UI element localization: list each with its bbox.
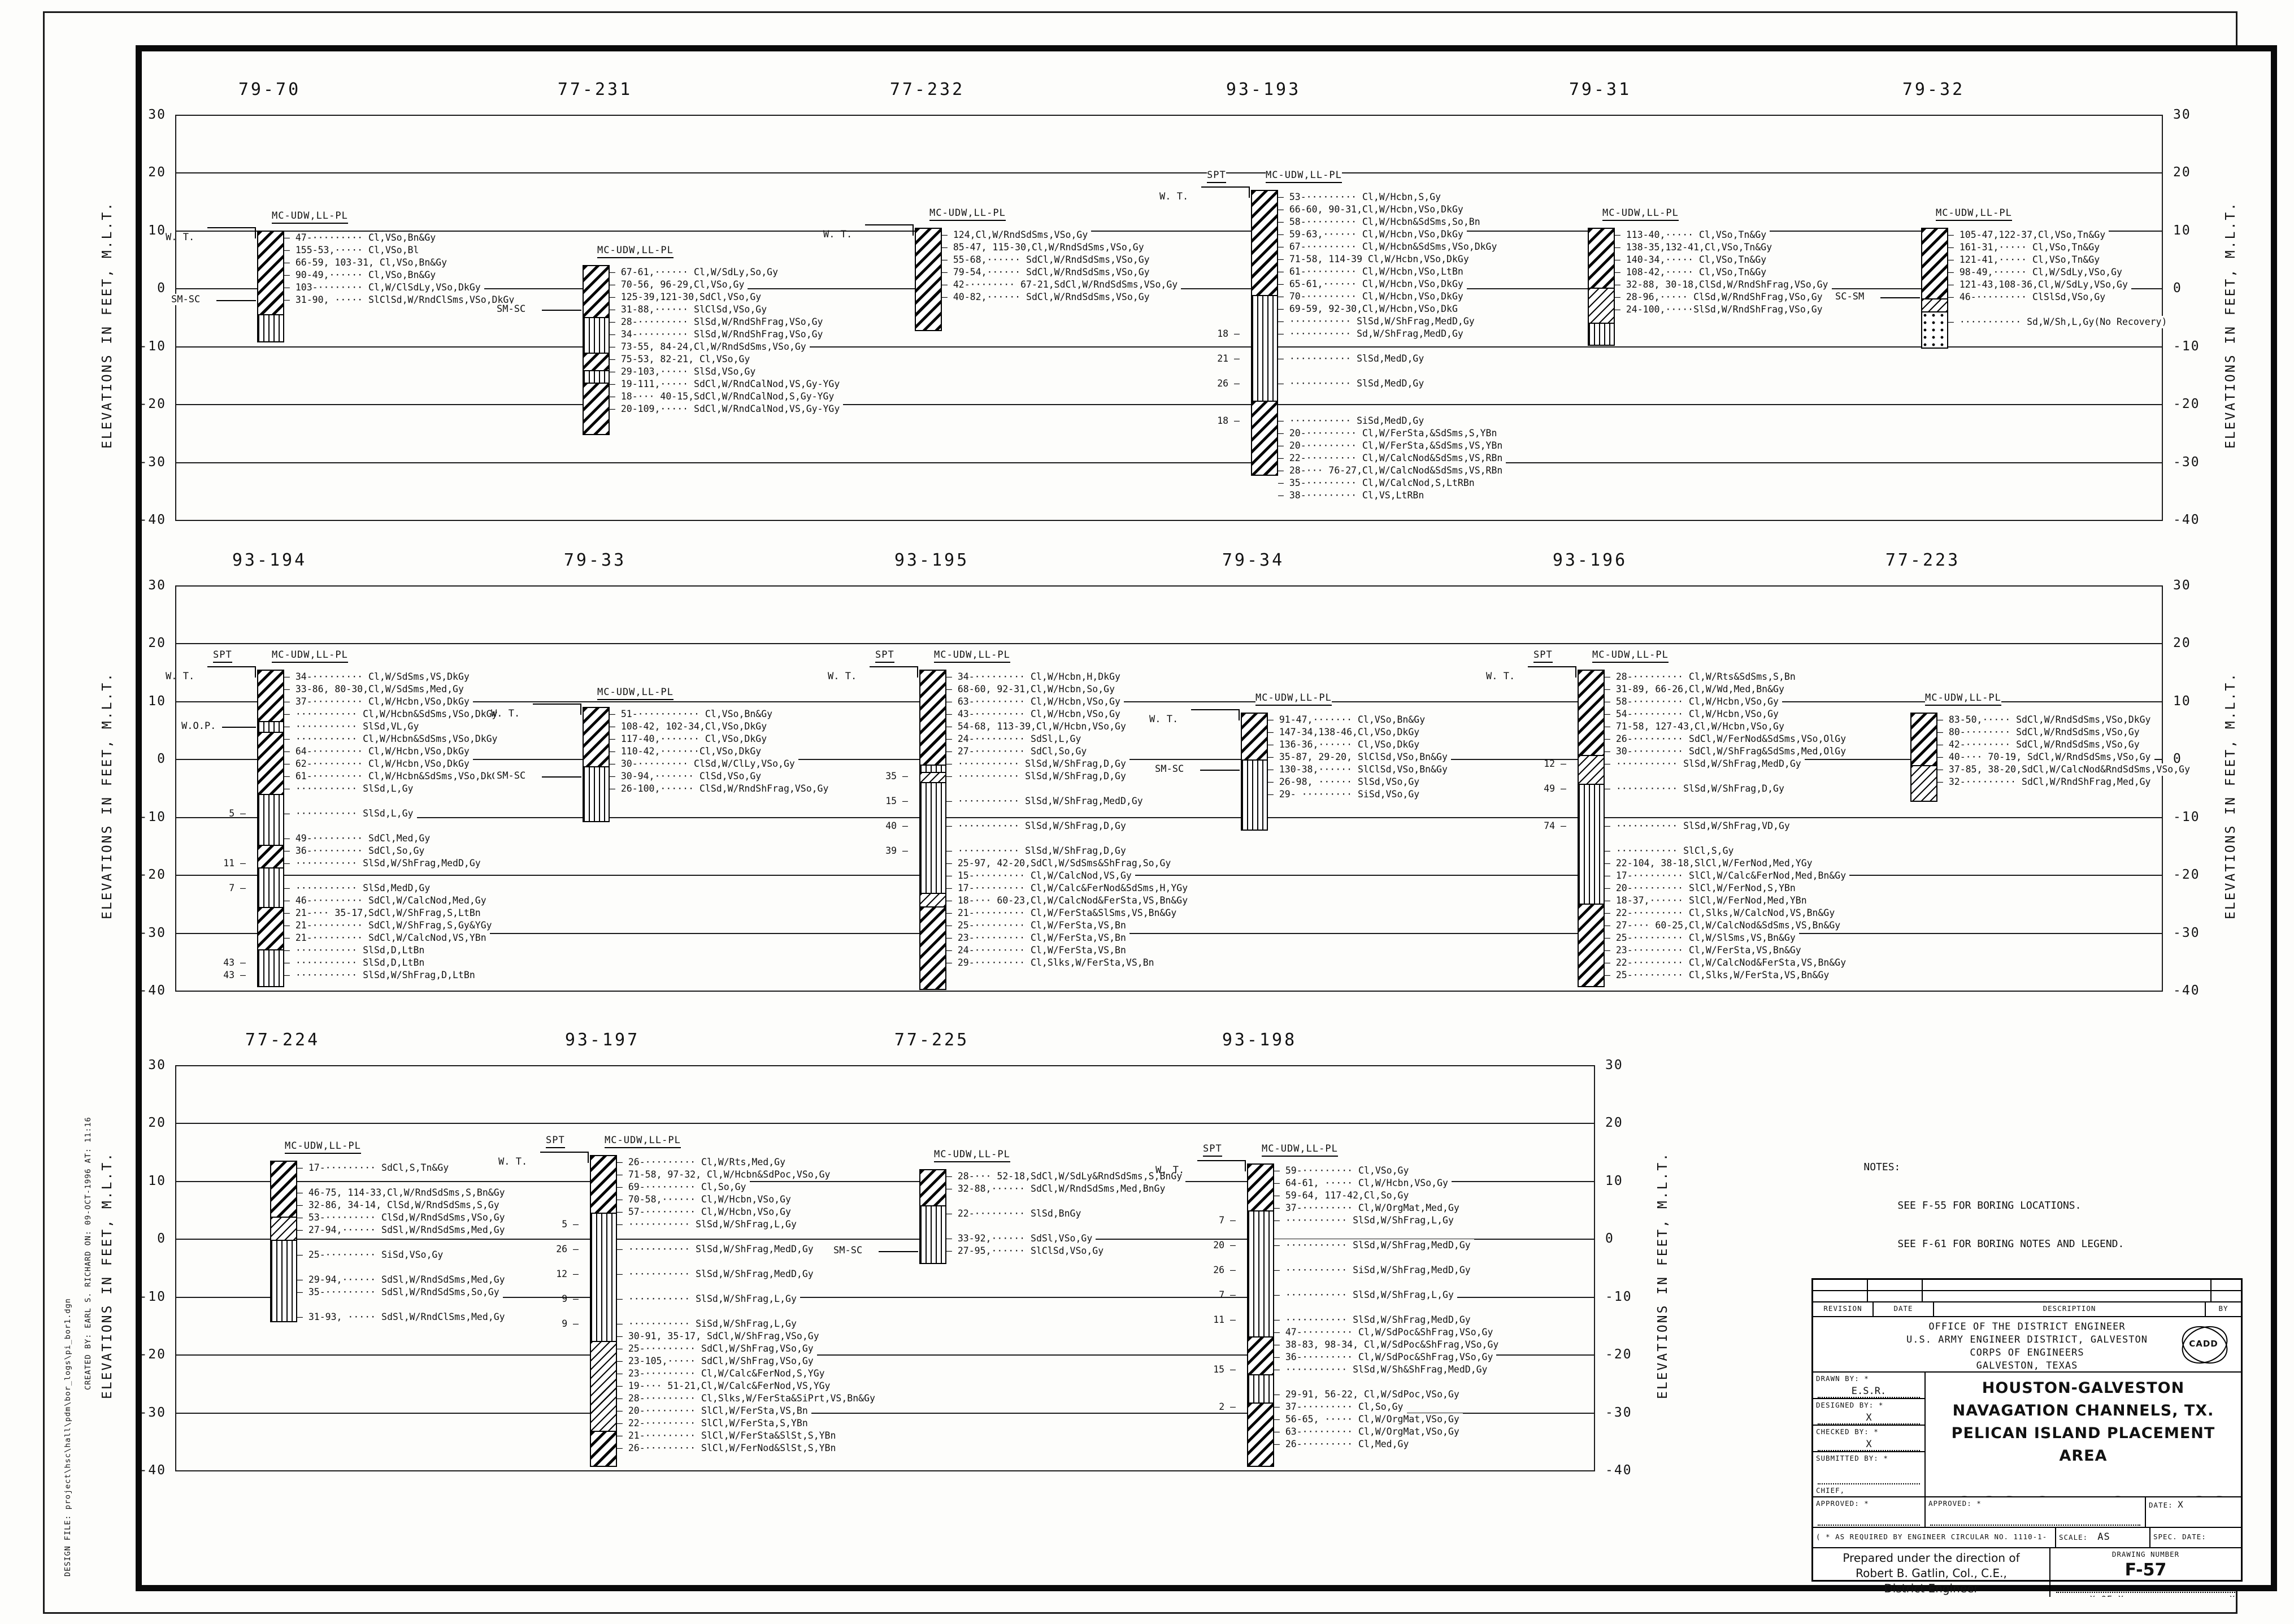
boring-column (583, 707, 610, 822)
spt-value: 20 – (1151, 1239, 1236, 1252)
stratum-segment-0 (258, 232, 283, 314)
panel-left-axis-line (175, 115, 176, 520)
right-tick--30: -30 (1605, 1405, 1632, 1420)
log-row: 138-35,132-41,Cl,VSo,Tn&Gy (1492, 241, 1865, 254)
log-row: 27-94,······ SdSl,W/RndSdSms,Med,Gy (174, 1224, 547, 1236)
spt-value: 7 – (1151, 1214, 1236, 1227)
log-row: 54-········· Cl,W/Hcbn,VSo,Gy (1481, 708, 1854, 720)
tb-date-label: DATE: X (2146, 1497, 2241, 1512)
layer-description: 136-36,······ Cl,VSo,DkGy (1268, 739, 1423, 751)
left-tick-20: 20 (127, 636, 166, 650)
log-row: 35-87, 29-20, SlClSd,VSo,Bn&Gy (1145, 751, 1518, 763)
spt-value: 12 – (494, 1268, 579, 1280)
boring-93-196: 93-196SPTMC-UDW,LL-PLW. T.28-········· C… (1481, 585, 1854, 991)
stratum-segment-4 (920, 893, 945, 906)
elevation-gridline-0 (175, 759, 2163, 760)
log-row: 25-········· Cl,W/FerSta,VS,Bn (823, 919, 1196, 932)
elevation-gridline-20 (175, 643, 2163, 644)
water-table-bracket (865, 224, 914, 236)
description-header: DESCRIPTION (1933, 1302, 2205, 1316)
notes-heading: NOTES: (1863, 1161, 1900, 1173)
log-row: 136-36,······ Cl,VSo,DkGy (1145, 739, 1518, 751)
right-tick-10: 10 (2173, 223, 2191, 238)
log-row: 110-42,·······Cl,VSo,DkGy (486, 745, 859, 758)
layer-description: 19-··· 51-21,Cl,W/Calc&FerNod,VS,YGy (617, 1380, 834, 1392)
layer-description: 17-········· SdCl,S,Tn&Gy (297, 1162, 452, 1174)
layer-description: 36-········· Cl,W/SdPoc&ShFrag,VSo,Gy (1274, 1351, 1496, 1364)
log-row: 11 –··········· SlSd,W/ShFrag,MedD,Gy (161, 857, 534, 870)
soil-class-label-SM-SC: SM-SC (831, 1245, 864, 1256)
elevation-gridline-0 (175, 288, 2163, 289)
layer-description: 32-86, 34-14, ClSd,W/RndSdSms,S,Gy (297, 1199, 503, 1212)
stratum-segment-1 (584, 766, 609, 821)
layer-description: ··········· SlSd,W/ShFrag,D,Gy (946, 845, 1129, 857)
soil-class-line (1200, 770, 1240, 771)
layer-description: ··········· SlSd,W/ShFrag,MedD,Gy (1274, 1239, 1474, 1252)
layer-description: 66-60, 90-31,Cl,W/Hcbn,VSo,DkGy (1278, 203, 1467, 216)
prepared-line2: Robert B. Gatlin, Col., C.E., (1856, 1566, 2007, 1580)
by-header: BY (2205, 1302, 2241, 1316)
stratum-segment-3 (1579, 904, 1604, 986)
stratum-segment-0 (920, 1170, 945, 1205)
right-tick--20: -20 (2173, 397, 2200, 411)
left-tick-0: 0 (127, 752, 166, 766)
layer-description: 91-47,······· Cl,VSo,Bn&Gy (1268, 714, 1428, 726)
layer-description: ··········· SlSd,VL,Gy (284, 720, 422, 733)
layer-description: ··········· SlSd,W/ShFrag,MedD,Gy (946, 795, 1146, 807)
boring-79-70: 79-70MC-UDW,LL-PLW. T.SM-SC47-········· … (161, 115, 534, 520)
right-tick-20: 20 (1605, 1115, 1623, 1130)
left-tick--20: -20 (127, 867, 166, 882)
mc-udw-header: MC-UDW,LL-PL (1255, 692, 1332, 706)
spt-value: 21 – (1155, 353, 1240, 365)
stratum-segment-2 (584, 353, 609, 370)
left-tick-10: 10 (127, 694, 166, 709)
log-row: 9 –··········· SlSd,W/ShFrag,L,Gy (494, 1293, 867, 1305)
layer-description: 31-90, ····· SlClSd,W/RndClSms,VSo,DkGy (284, 294, 518, 306)
soil-class-line (542, 310, 581, 311)
log-row: 34-········· SlSd,W/RndShFrag,VSo,Gy (486, 328, 859, 341)
stratum-segment-2 (1252, 401, 1277, 475)
layer-description: 56-65, ····· Cl,W/OrgMat,VSo,Gy (1274, 1413, 1463, 1426)
log-row: 23-105,····· SdCl,W/ShFrag,VSo,Gy (494, 1355, 867, 1367)
log-row: 46-········· ClSlSd,VSo,Gy (1825, 291, 2198, 303)
approved-chief: CHIEF. (1813, 1526, 1924, 1527)
spt-value: 18 – (1155, 415, 1240, 427)
log-row: 57-········· Cl,W/Hcbn,VSo,Gy (494, 1206, 867, 1218)
layer-description: 54-68, 113-39,Cl,W/Hcbn,VSo,Gy (946, 720, 1129, 733)
layer-description: 31-93, ····· SdSl,W/RndClSms,Med,Gy (297, 1311, 509, 1323)
layer-description: ··········· SlSd,W/ShFrag,L,Gy (1274, 1214, 1457, 1227)
log-row: 66-60, 90-31,Cl,W/Hcbn,VSo,DkGy (1155, 203, 1528, 216)
log-row: 56-65, ····· Cl,W/OrgMat,VSo,Gy (1151, 1413, 1524, 1426)
drawn-by-value: E.S.R. (1818, 1386, 1920, 1398)
layer-description: ··········· SlSd,W/ShFrag,L,Gy (617, 1293, 800, 1305)
log-row: 36-········· SdCl,So,Gy (161, 845, 534, 857)
log-row: 28-96,····· ClSd,W/RndShFrag,VSo,Gy (1492, 291, 1865, 303)
designed-by-value: X (1818, 1412, 1920, 1425)
log-row: 23-········· Cl,W/FerSta,VS,Bn&Gy (1481, 944, 1854, 957)
log-row: 31-90, ····· SlClSd,W/RndClSms,VSo,DkGy (161, 294, 534, 306)
log-row: ··········· Sd,W/Sh,L,Gy(No Recovery) (1825, 316, 2198, 328)
prepared-under: Prepared under the direction of Robert B… (1813, 1548, 2049, 1597)
right-tick-20: 20 (2173, 636, 2191, 650)
left-tick-30: 30 (127, 107, 166, 122)
log-row: 43 –··········· SlSd,W/ShFrag,D,LtBn (161, 969, 534, 982)
right-tick--10: -10 (1605, 1289, 1632, 1304)
boring-column (915, 228, 942, 331)
log-row: 15 –··········· SlSd,W/Sh&ShFrag,MedD,Gy (1151, 1364, 1524, 1376)
layer-description: ··········· Cl,W/Hcbn&SdSms,VSo,DkGy (284, 708, 501, 720)
log-row: 31-89, 66-26,Cl,W/Wd,Med,Bn&Gy (1481, 683, 1854, 696)
log-row: 22-········· SlCl,W/FerSta,S,YBn (494, 1417, 867, 1430)
stratum-segment-2 (258, 732, 283, 794)
log-row: 66-59, 103-31, Cl,VSo,Bn&Gy (161, 257, 534, 269)
stratum-segment-0 (584, 266, 609, 317)
right-tick-30: 30 (1605, 1058, 1623, 1072)
panel-right-axis-line (2162, 585, 2163, 991)
elevation-gridline-30 (175, 1065, 1595, 1066)
project-title-line1: HOUSTON-GALVESTON NAVAGATION CHANNELS, T… (1953, 1379, 2214, 1419)
layer-description: 90-49,······ Cl,VSo,Bn&Gy (284, 269, 439, 281)
stratum-segment-1 (258, 314, 283, 341)
layer-description: 28-··· 76-27,Cl,W/CalcNod&SdSms,VS,RBn (1278, 464, 1506, 477)
log-row: 7 –··········· SlSd,W/ShFrag,L,Gy (1151, 1289, 1524, 1301)
stratum-segment-0 (258, 671, 283, 722)
water-table-bracket (1201, 186, 1250, 198)
elevation-gridline-0 (175, 1239, 1595, 1240)
stratum-segment-0 (584, 708, 609, 766)
log-row: 30-91, 35-17, SdCl,W/ShFrag,VSo,Gy (494, 1330, 867, 1343)
right-tick--40: -40 (2173, 513, 2200, 527)
log-row: 37-········· Cl,W/OrgMat,Med,Gy (1151, 1202, 1524, 1214)
right-tick--20: -20 (2173, 867, 2200, 882)
right-axis-title: ELEVATIONS IN FEET, M.L.T. (1656, 1078, 1670, 1473)
stratum-segment-0 (1579, 671, 1604, 755)
log-row: 47-········· Cl,VSo,Bn&Gy (161, 232, 534, 244)
layer-description: ··········· SlSd,W/ShFrag,L,Gy (1274, 1289, 1457, 1301)
layer-description: 63-········· Cl,W/OrgMat,VSo,Gy (1274, 1426, 1463, 1438)
soil-class-label-SM-SC: SM-SC (494, 303, 528, 315)
log-row: ··········· SlSd,D,LtBn (161, 944, 534, 957)
stratum-segment-0 (271, 1162, 296, 1217)
spt-value: 11 – (1151, 1314, 1236, 1326)
layer-description: ··········· SlSd,L,Gy (284, 783, 417, 795)
spt-value: 5 – (494, 1218, 579, 1231)
log-row: 49 –··········· SlSd,W/ShFrag,D,Gy (1481, 783, 1854, 795)
title-block: REVISION DATE DESCRIPTION BY OFFICE OF T… (1811, 1278, 2243, 1582)
boring-column (1251, 190, 1278, 476)
boring-column (1247, 1163, 1274, 1467)
layer-description: 20-········· Cl,W/FerSta,&SdSms,S,YBn (1278, 427, 1500, 440)
layer-description: 37-85, 38-20,SdCl,W/CalcNod&RndSdSms,VSo… (1937, 763, 2193, 776)
mc-udw-header: MC-UDW,LL-PL (272, 649, 348, 663)
layer-description: 79-54,······ SdCl,W/RndSdSms,VSo,Gy (942, 266, 1153, 279)
left-tick-30: 30 (127, 1058, 166, 1072)
spt-value: 9 – (494, 1318, 579, 1330)
right-tick-0: 0 (2173, 752, 2182, 766)
log-row: 40 –··········· SlSd,W/ShFrag,D,Gy (823, 820, 1196, 832)
right-tick--20: -20 (1605, 1347, 1632, 1362)
elevation-gridline--10 (175, 1297, 1595, 1298)
layer-description: 25-97, 42-20,SdCl,W/SdSms&ShFrag,So,Gy (946, 857, 1174, 870)
stratum-segment-1 (1589, 288, 1614, 323)
log-row: 21-········· Cl,W/FerSta&SlSms,VS,Bn&Gy (823, 907, 1196, 919)
log-row: 61-········· Cl,W/Hcbn&SdSms,VSo,DkGy (161, 770, 534, 783)
log-row: 20 –··········· SlSd,W/ShFrag,MedD,Gy (1151, 1239, 1524, 1252)
water-table-bracket (207, 227, 256, 238)
revision-header: REVISION (1813, 1302, 1872, 1316)
layer-description: 21-··· 35-17,SdCl,W/ShFrag,S,LtBn (284, 907, 484, 919)
log-row: 25-········· SdCl,W/ShFrag,VSo,Gy (494, 1343, 867, 1355)
layer-description: 25-········· Cl,Slks,W/FerSta,VS,Bn&Gy (1605, 969, 1832, 982)
log-row: 117-40,······· Cl,VSo,DkGy (486, 733, 859, 745)
layer-description: 20-········· SlCl,W/FerSta,VS,Bn (617, 1405, 811, 1417)
log-row: ··········· SlSd,L,Gy (161, 783, 534, 795)
stratum-segment-0 (1248, 1165, 1273, 1210)
water-table-bracket (870, 666, 918, 678)
boring-column (583, 265, 610, 435)
log-row: 28-··· 76-27,Cl,W/CalcNod&SdSms,VS,RBn (1155, 464, 1528, 477)
log-row: 35-········· Cl,W/CalcNod,S,LtRBn (1155, 477, 1528, 489)
stratum-segment-0 (1589, 229, 1614, 288)
mc-udw-header: MC-UDW,LL-PL (597, 687, 674, 700)
layer-description: 18-··· 40-15,SdCl,W/RndCalNod,S,Gy-YGy (610, 390, 837, 403)
layer-description: 83-50,····· SdCl,W/RndSdSms,VSo,DkGy (1937, 714, 2154, 726)
log-row: 21-········· SdCl,W/ShFrag,S,Gy&YGy (161, 919, 534, 932)
stratum-segment-6 (258, 907, 283, 949)
drawing-number-value: F-57 (2050, 1560, 2241, 1580)
layer-description: 70-········· Cl,W/Hcbn,VSo,DkGy (1278, 290, 1467, 303)
layer-description: 75-53, 82-21, Cl,VSo,Gy (610, 353, 753, 366)
layer-description: 26-········· Cl,W/Rts,Med,Gy (617, 1156, 789, 1169)
log-row: 85-47, 115-30,Cl,W/RndSdSms,VSo,Gy (819, 241, 1192, 254)
elevation-gridline--10 (175, 346, 2163, 348)
log-row: ··········· SlCl,S,Gy (1481, 845, 1854, 857)
left-axis-title: ELEVATIONS IN FEET, M.L.T. (100, 598, 115, 993)
layer-description: 22-········· Cl,Slks,W/CalcNod,VS,Bn&Gy (1605, 907, 1838, 919)
elevation-gridline--20 (175, 875, 2163, 876)
right-tick-0: 0 (1605, 1231, 1614, 1246)
margin-created-by: CREATED BY: EARL S. RICHARD ON: 09-OCT-1… (84, 1117, 93, 1390)
approved2-label: APPROVED: * (1926, 1497, 2145, 1509)
layer-description: 21-········· SlCl,W/FerSta&SlSt,S,YBn (617, 1430, 839, 1442)
sheet-title: LOGS OF BORINGS (1926, 1491, 2241, 1496)
mc-udw-header: MC-UDW,LL-PL (1592, 649, 1669, 663)
panel-left-axis-line (175, 1065, 176, 1470)
log-row: 37-85, 38-20,SdCl,W/CalcNod&RndSdSms,VSo… (1814, 763, 2187, 776)
elevation-gridline--40 (175, 520, 2163, 521)
layer-description: ··········· SiSd,W/ShFrag,L,Gy (617, 1318, 800, 1330)
boring-79-33: 79-33MC-UDW,LL-PLW. T.SM-SC51-··········… (486, 585, 859, 991)
layer-description: 66-59, 103-31, Cl,VSo,Bn&Gy (284, 257, 450, 269)
stratum-segment-1 (271, 1217, 296, 1240)
log-row: 31-88,······ SlClSd,VSo,Gy (486, 303, 859, 316)
left-tick--10: -10 (127, 339, 166, 354)
spt-header: SPT (546, 1135, 565, 1148)
layer-description: 110-42,·······Cl,VSo,DkGy (610, 745, 764, 758)
log-row: 19-··· 51-21,Cl,W/Calc&FerNod,VS,YGy (494, 1380, 867, 1392)
drawn-by-label: DRAWN BY: * (1813, 1373, 1924, 1384)
stratum-segment-2 (271, 1240, 296, 1321)
layer-description: 28-········· Cl,Slks,W/FerSta&SiPrt,VS,B… (617, 1392, 879, 1405)
boring-79-34: 79-34MC-UDW,LL-PLW. T.SM-SC91-47,·······… (1145, 585, 1518, 991)
layer-description: 18-··· 60-23,Cl,W/CalcNod&FerSta,VS,Bn&G… (946, 894, 1191, 907)
layer-description: ··········· SlSd,W/ShFrag,MedD,Gy (1274, 1314, 1474, 1326)
soil-class-line (1880, 297, 1920, 298)
prepared-line1: Prepared under the direction of (1843, 1551, 2019, 1565)
layer-description: 59-64, 117-42,Cl,So,Gy (1274, 1189, 1412, 1202)
layer-description: 108-42,····· Cl,VSo,Tn&Gy (1615, 266, 1770, 279)
submitted-chief-label: CHIEF, (1813, 1484, 1924, 1496)
log-row: 18-··· 60-23,Cl,W/CalcNod&FerSta,VS,Bn&G… (823, 894, 1196, 907)
stratum-segment-0 (1911, 714, 1936, 765)
log-row: 161-31,····· Cl,VSo,Tn&Gy (1825, 241, 2198, 254)
log-row: 20-········· SlCl,W/FerSta,VS,Bn (494, 1405, 867, 1417)
log-row: 7 –··········· SlSd,W/ShFrag,L,Gy (1151, 1214, 1524, 1227)
stratum-segment-1 (258, 721, 283, 731)
elevation-gridline--30 (175, 462, 2163, 463)
log-row: 19-111,····· SdCl,W/RndCalNod,VS,Gy-YGy (486, 378, 859, 390)
layer-description: ··········· Sd,W/ShFrag,MedD,Gy (1278, 328, 1467, 340)
date-header: DATE (1872, 1302, 1933, 1316)
layer-description: 54-········· Cl,W/Hcbn,VSo,Gy (1605, 708, 1782, 720)
layer-description: 22-········· SlSd,BnGy (946, 1208, 1084, 1220)
right-axis-title: ELEVATIONS IN FEET, M.L.T. (2223, 598, 2238, 993)
layer-description: ··········· SiSd,W/ShFrag,MedD,Gy (1274, 1264, 1474, 1276)
left-tick-0: 0 (127, 281, 166, 296)
spt-value: 15 – (1151, 1364, 1236, 1376)
layer-description: 25-········· SiSd,VSo,Gy (297, 1249, 446, 1261)
boring-77-223: 77-223MC-UDW,LL-PL83-50,····· SdCl,W/Rnd… (1814, 585, 2187, 991)
right-tick-10: 10 (1605, 1174, 1623, 1188)
log-row: 32-86, 34-14, ClSd,W/RndSdSms,S,Gy (174, 1199, 547, 1212)
log-row: 58-········· Cl,W/Hcbn&SdSms,So,Bn (1155, 216, 1528, 228)
layer-description: 29-103,····· SlSd,VSo,Gy (610, 366, 759, 378)
layer-description: ··········· SlSd,D,LtBn (284, 944, 428, 957)
layer-description: 26-········· SdCl,W/FerNod&SdSms,VSo,OlG… (1605, 733, 1849, 745)
log-row: 18-37,······ SlCl,W/FerNod,Med,YBn (1481, 894, 1854, 907)
stratum-segment-3 (1248, 1374, 1273, 1402)
water-table-label: W. T. (491, 708, 520, 719)
elevation-gridline-30 (175, 585, 2163, 587)
water-table-label: W. T. (828, 671, 857, 682)
log-row: 35 –··········· SlSd,W/ShFrag,D,Gy (823, 770, 1196, 783)
elevation-gridline-20 (175, 172, 2163, 173)
log-row: 23-········· Cl,W/Calc&FerNod,S,YGy (494, 1367, 867, 1380)
log-row: 26-········· Cl,Med,Gy (1151, 1438, 1524, 1451)
stratum-segment-3 (591, 1431, 616, 1466)
layer-description: 30-91, 35-17, SdCl,W/ShFrag,VSo,Gy (617, 1330, 823, 1343)
log-row: 18 –··········· SiSd,MedD,Gy (1155, 415, 1528, 427)
boring-column (590, 1155, 617, 1467)
office-block: OFFICE OF THE DISTRICT ENGINEER U.S. ARM… (1813, 1317, 2241, 1371)
layer-description: 21-········· Cl,W/FerSta&SlSms,VS,Bn&Gy (946, 907, 1180, 919)
soil-class-label-SM-SC: SM-SC (1153, 763, 1186, 775)
stratum-segment-3 (584, 370, 609, 383)
log-row: 79-54,······ SdCl,W/RndSdSms,VSo,Gy (819, 266, 1192, 279)
water-table-bracket (540, 1152, 589, 1163)
layer-description: 57-········· Cl,W/Hcbn,VSo,Gy (617, 1206, 794, 1218)
elevation-gridline-30 (175, 115, 2163, 116)
log-row: 26 –··········· SlSd,MedD,Gy (1155, 377, 1528, 390)
boring-93-198: 93-198SPTMC-UDW,LL-PLW. T.59-········· C… (1151, 1065, 1524, 1470)
layer-description: 140-34,····· Cl,VSo,Tn&Gy (1615, 254, 1770, 266)
layer-description: 67-········· Cl,W/Hcbn&SdSms,VSo,DkGy (1278, 241, 1500, 253)
panel-right-axis-line (2162, 115, 2163, 520)
mc-udw-header: MC-UDW,LL-PL (597, 245, 674, 258)
layer-description: ··········· SlSd,W/ShFrag,D,LtBn (284, 969, 479, 982)
note-line-2: SEE F-61 FOR BORING NOTES AND LEGEND. (1863, 1238, 2124, 1250)
prepared-line3: District Engineer (1884, 1582, 1978, 1595)
log-row: 71-58, 114-39 Cl,W/Hcbn,VSo,DkGy (1155, 253, 1528, 266)
layer-description: 64-61, ····· Cl,W/Hcbn,VSo,Gy (1274, 1177, 1452, 1189)
left-tick--30: -30 (127, 1405, 166, 1420)
log-row: 27-··· 60-25,Cl,W/CalcNod&SdSms,VS,Bn&Gy (1481, 919, 1854, 932)
stratum-segment-1 (1252, 295, 1277, 400)
log-row: 69-········· Cl,So,Gy (494, 1181, 867, 1193)
log-row: 63-········· Cl,W/OrgMat,VSo,Gy (1151, 1426, 1524, 1438)
stratum-segment-0 (1252, 191, 1277, 295)
left-tick--20: -20 (127, 397, 166, 411)
left-tick-20: 20 (127, 1115, 166, 1130)
layer-description: 71-58, 114-39 Cl,W/Hcbn,VSo,DkGy (1278, 253, 1472, 266)
log-row: 42-········ SdCl,W/RndSdSms,VSo,Gy (1814, 739, 2187, 751)
elevation-gridline-10 (175, 1181, 1595, 1182)
right-tick--40: -40 (1605, 1463, 1632, 1478)
log-row: 21-········· SlCl,W/FerSta&SlSt,S,YBn (494, 1430, 867, 1442)
log-row: 68-60, 92-31,Cl,W/Hcbn,So,Gy (823, 683, 1196, 696)
right-axis-title: ELEVATIONS IN FEET, M.L.T. (2223, 127, 2238, 523)
elevation-gridline--30 (175, 933, 2163, 934)
boring-column (1241, 713, 1268, 831)
stratum-segment-0 (916, 229, 941, 330)
left-tick--30: -30 (127, 455, 166, 470)
soil-class-line (879, 1251, 918, 1252)
right-tick--10: -10 (2173, 339, 2200, 354)
layer-description: 17-········· Cl,W/Calc&FerNod&SdSms,H,YG… (946, 882, 1191, 894)
layer-description: 19-111,····· SdCl,W/RndCalNod,VS,Gy-YGy (610, 378, 843, 390)
log-row: 61-········· Cl,W/Hcbn,VSo,LtBn (1155, 266, 1528, 278)
log-row: 40-··· 70-19, SdCl,W/RndSdSms,VSo,Gy (1814, 751, 2187, 763)
log-row: 108-42, 102-34,Cl,VSo,DkGy (486, 720, 859, 733)
mc-udw-header: MC-UDW,LL-PL (1262, 1143, 1338, 1157)
layer-description: 70-58,······ Cl,W/Hcbn,VSo,Gy (617, 1193, 794, 1206)
log-row: ··········· SlSd,VL,Gy (161, 720, 534, 733)
log-panel-1: 30302020101000-10-10-20-20-30-30-40-40EL… (175, 115, 2163, 520)
log-row: 26-········· SdCl,W/FerNod&SdSms,VSo,OlG… (1481, 733, 1854, 745)
elevation-gridline--30 (175, 1413, 1595, 1414)
soil-class-label-SC-SM: SC-SM (1833, 291, 1866, 302)
log-row: 22-104, 38-18,SlCl,W/FerNod,Med,YGy (1481, 857, 1854, 870)
boring-77-231: 77-231MC-UDW,LL-PLSM-SC67-61,······ Cl,W… (486, 115, 859, 520)
layer-description: 59-········· Cl,VSo,Gy (1274, 1165, 1412, 1177)
mc-udw-header: MC-UDW,LL-PL (1936, 207, 2012, 221)
layer-description: ··········· SlSd,W/ShFrag,D,Gy (946, 770, 1129, 783)
cadd-logo: CADD (2170, 1317, 2237, 1371)
circular-note: ( * AS REQUIRED BY ENGINEER CIRCULAR NO.… (1813, 1528, 2055, 1547)
right-tick--10: -10 (2173, 810, 2200, 824)
layer-description: 58-········· Cl,W/Hcbn&SdSms,So,Bn (1278, 216, 1484, 228)
spt-header: SPT (875, 649, 894, 663)
log-row: 91-47,······· Cl,VSo,Bn&Gy (1145, 714, 1518, 726)
stratum-segment-2 (1922, 311, 1947, 348)
water-table-label: W. T. (1149, 714, 1178, 725)
right-tick-0: 0 (2173, 281, 2182, 296)
mc-udw-header: MC-UDW,LL-PL (1925, 692, 2001, 706)
layer-description: 121-41,····· Cl,VSo,Tn&Gy (1948, 254, 2103, 266)
layer-description: 46-········· SdCl,W/CalcNod,Med,Gy (284, 894, 490, 907)
